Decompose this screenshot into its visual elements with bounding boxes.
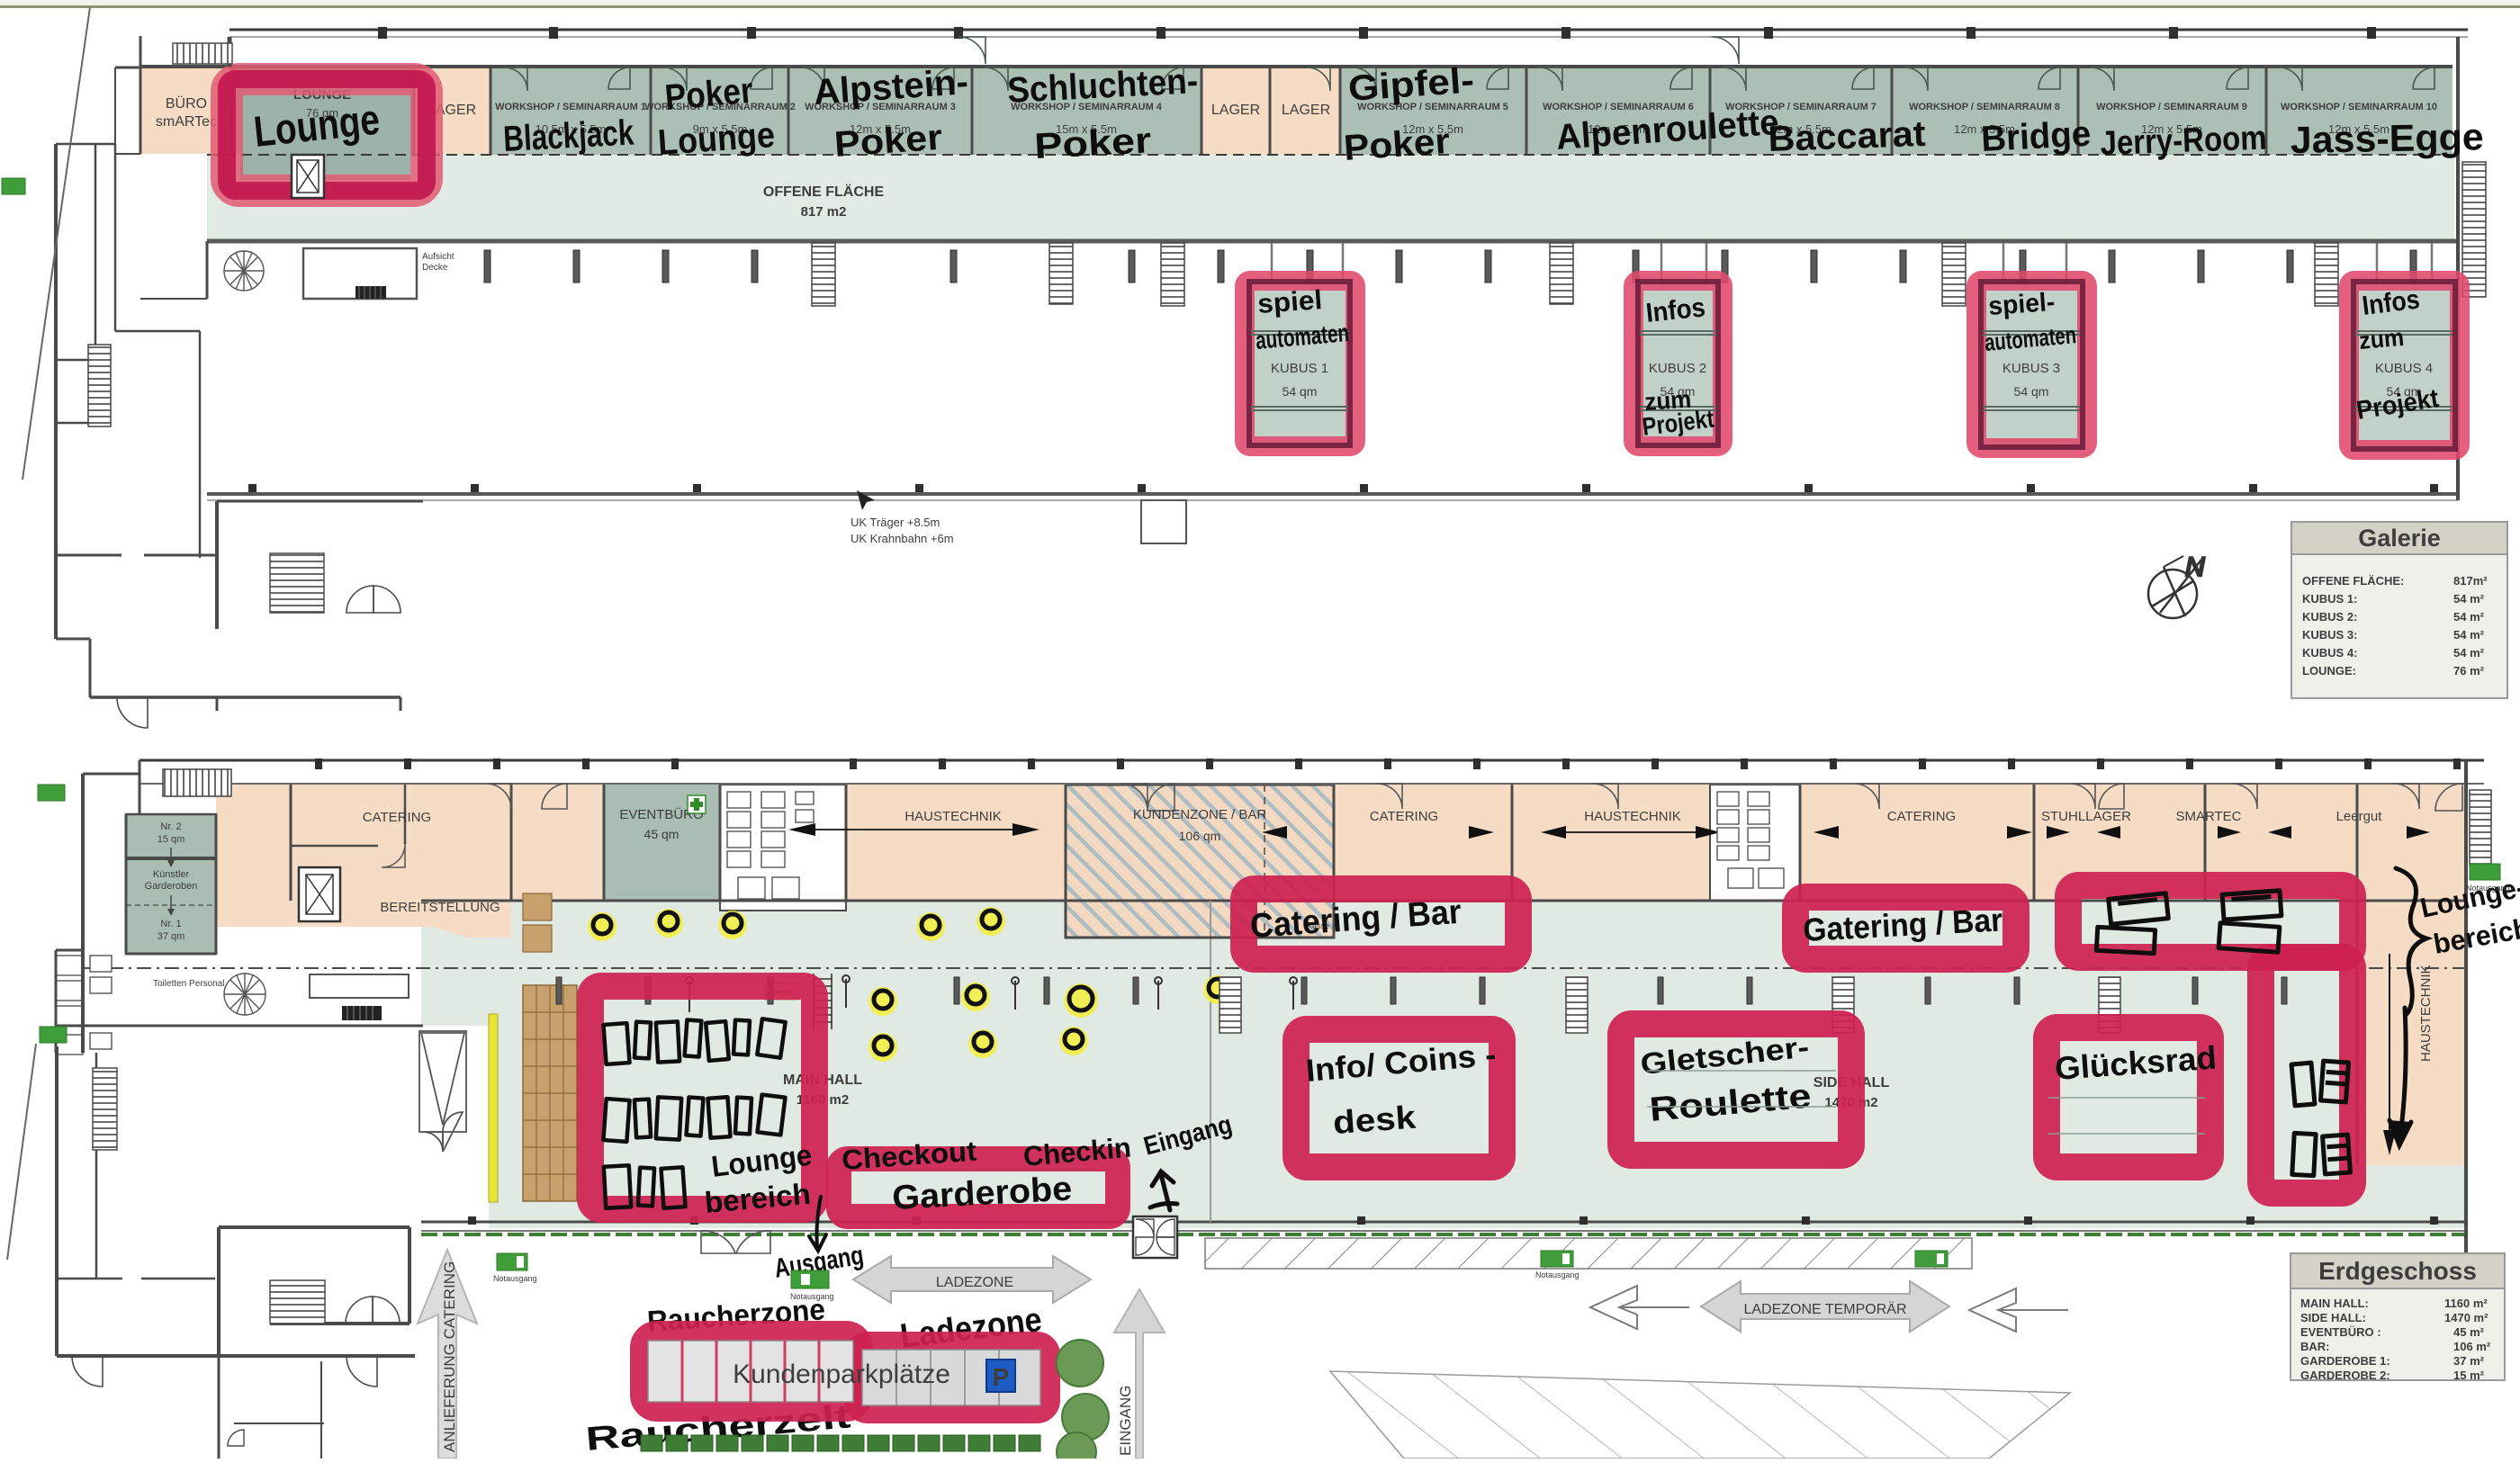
svg-text:76 m²: 76 m² [2453, 664, 2485, 678]
svg-text:KUBUS 4: KUBUS 4 [2375, 361, 2433, 376]
svg-text:CATERING: CATERING [363, 810, 431, 825]
svg-text:WORKSHOP / SEMINARRAUM 1: WORKSHOP / SEMINARRAUM 1 [495, 102, 646, 112]
svg-text:54 m²: 54 m² [2453, 628, 2485, 642]
svg-text:WORKSHOP / SEMINARRAUM 9: WORKSHOP / SEMINARRAUM 9 [2096, 102, 2247, 112]
svg-text:EVENTBÜRO :: EVENTBÜRO : [2300, 1325, 2381, 1339]
svg-text:KUBUS 3:: KUBUS 3: [2302, 628, 2357, 642]
svg-text:OFFENE FLÄCHE:: OFFENE FLÄCHE: [2302, 574, 2404, 588]
svg-text:KUBUS 4:: KUBUS 4: [2302, 646, 2357, 660]
svg-text:45 qm: 45 qm [644, 827, 679, 841]
svg-text:Poker: Poker [663, 71, 754, 118]
svg-text:spiel: spiel [1256, 285, 1323, 319]
svg-text:37 m²: 37 m² [2453, 1354, 2485, 1368]
svg-text:15 qm: 15 qm [157, 834, 185, 845]
svg-text:WORKSHOP / SEMINARRAUM 10: WORKSHOP / SEMINARRAUM 10 [2281, 102, 2437, 112]
svg-text:smARTec: smARTec [156, 114, 217, 130]
svg-text:UK Träger +8.5m: UK Träger +8.5m [850, 516, 940, 529]
svg-text:zum: zum [2358, 324, 2405, 355]
svg-text:BAR:: BAR: [2300, 1340, 2330, 1353]
svg-text:Garderoben: Garderoben [145, 881, 198, 892]
svg-text:817 m2: 817 m2 [801, 204, 847, 220]
svg-text:KUBUS 3: KUBUS 3 [2002, 361, 2060, 376]
svg-text:LADEZONE TEMPORÄR: LADEZONE TEMPORÄR [1743, 1301, 1906, 1317]
svg-text:MAIN HALL:: MAIN HALL: [2300, 1297, 2369, 1310]
svg-text:106 m²: 106 m² [2453, 1340, 2491, 1353]
svg-text:CATERING: CATERING [1370, 809, 1438, 824]
svg-text:HAUSTECHNIK: HAUSTECHNIK [904, 809, 1002, 824]
svg-text:54 m²: 54 m² [2453, 592, 2485, 606]
svg-text:OFFENE FLÄCHE: OFFENE FLÄCHE [763, 184, 885, 200]
svg-text:CATERING: CATERING [1887, 809, 1956, 824]
svg-text:45 m²: 45 m² [2453, 1325, 2485, 1339]
svg-text:Lounge: Lounge [657, 115, 777, 163]
svg-text:Notausgang: Notausgang [2466, 884, 2510, 893]
svg-text:Nr. 1: Nr. 1 [160, 919, 181, 929]
svg-text:Poker: Poker [1033, 121, 1152, 166]
svg-text:SIDE HALL:: SIDE HALL: [2300, 1311, 2366, 1324]
svg-text:37 qm: 37 qm [157, 931, 185, 942]
svg-text:UK Krahnbahn +6m: UK Krahnbahn +6m [850, 532, 954, 545]
svg-text:Jerry-Room: Jerry-Room [2100, 120, 2267, 163]
svg-text:WORKSHOP / SEMINARRAUM 8: WORKSHOP / SEMINARRAUM 8 [1909, 102, 2060, 112]
svg-text:HAUSTECHNIK: HAUSTECHNIK [1584, 809, 1681, 824]
svg-text:P: P [993, 1363, 1010, 1391]
svg-text:HAUSTECHNIK: HAUSTECHNIK [2418, 965, 2434, 1062]
svg-text:Leergut: Leergut [2336, 809, 2383, 824]
svg-text:LOUNGE:: LOUNGE: [2302, 664, 2356, 678]
svg-text:N: N [2185, 552, 2205, 582]
svg-text:Toiletten Personal: Toiletten Personal [153, 979, 225, 989]
svg-text:54 m²: 54 m² [2453, 646, 2485, 660]
svg-text:KUBUS 1: KUBUS 1 [1271, 361, 1328, 376]
svg-text:LAGER: LAGER [1211, 103, 1260, 118]
svg-text:817m²: 817m² [2453, 574, 2488, 588]
svg-text:desk: desk [1332, 1099, 1418, 1141]
svg-text:54 qm: 54 qm [2014, 384, 2049, 399]
svg-text:GARDEROBE 2:: GARDEROBE 2: [2300, 1369, 2390, 1382]
svg-text:spiel-: spiel- [1987, 288, 2056, 321]
svg-text:Infos: Infos [1644, 292, 1706, 328]
svg-text:106 qm: 106 qm [1179, 829, 1221, 843]
svg-text:SMARTEC: SMARTEC [2175, 809, 2241, 824]
svg-text:1470 m²: 1470 m² [2444, 1311, 2488, 1324]
svg-text:KUNDENZONE / BAR: KUNDENZONE / BAR [1133, 807, 1267, 822]
svg-text:Kundenparkplätze: Kundenparkplätze [733, 1360, 950, 1389]
svg-text:BEREITSTELLUNG: BEREITSTELLUNG [380, 900, 499, 915]
svg-text:Notausgang: Notausgang [1535, 1270, 1579, 1279]
svg-text:LADEZONE: LADEZONE [936, 1275, 1013, 1290]
svg-text:Künstler: Künstler [153, 869, 190, 880]
svg-text:GARDEROBE 1:: GARDEROBE 1: [2300, 1354, 2390, 1368]
svg-text:Decke: Decke [422, 263, 448, 273]
svg-text:Poker: Poker [1343, 121, 1452, 168]
svg-text:ANLIEFERUNG CATERING: ANLIEFERUNG CATERING [441, 1261, 458, 1452]
svg-text:15 m²: 15 m² [2453, 1369, 2485, 1382]
svg-text:Baccarat: Baccarat [1768, 114, 1926, 159]
svg-text:Nr. 2: Nr. 2 [160, 821, 181, 832]
svg-text:LAGER: LAGER [1282, 103, 1330, 118]
svg-text:Notausgang: Notausgang [790, 1292, 834, 1301]
svg-text:STUHLLAGER: STUHLLAGER [2041, 809, 2131, 824]
svg-text:KUBUS 2:: KUBUS 2: [2302, 610, 2357, 624]
svg-text:BÜRO: BÜRO [166, 95, 207, 112]
svg-text:KUBUS 1:: KUBUS 1: [2302, 592, 2357, 606]
svg-text:Bridge: Bridge [1980, 114, 2092, 159]
svg-text:54 qm: 54 qm [1282, 384, 1318, 399]
svg-text:Jass-Egge: Jass-Egge [2290, 115, 2484, 161]
svg-text:Galerie: Galerie [2358, 525, 2441, 552]
svg-text:1160 m²: 1160 m² [2444, 1297, 2488, 1310]
svg-text:Blackjack: Blackjack [502, 112, 635, 159]
svg-text:Erdgeschoss: Erdgeschoss [2318, 1257, 2477, 1285]
svg-text:Poker: Poker [833, 118, 944, 165]
svg-text:EINGANG: EINGANG [1117, 1386, 1134, 1456]
svg-text:KUBUS 2: KUBUS 2 [1649, 361, 1706, 376]
svg-text:54 m²: 54 m² [2453, 610, 2485, 624]
svg-text:Aufsicht: Aufsicht [422, 252, 454, 262]
svg-text:Notausgang: Notausgang [493, 1274, 537, 1283]
